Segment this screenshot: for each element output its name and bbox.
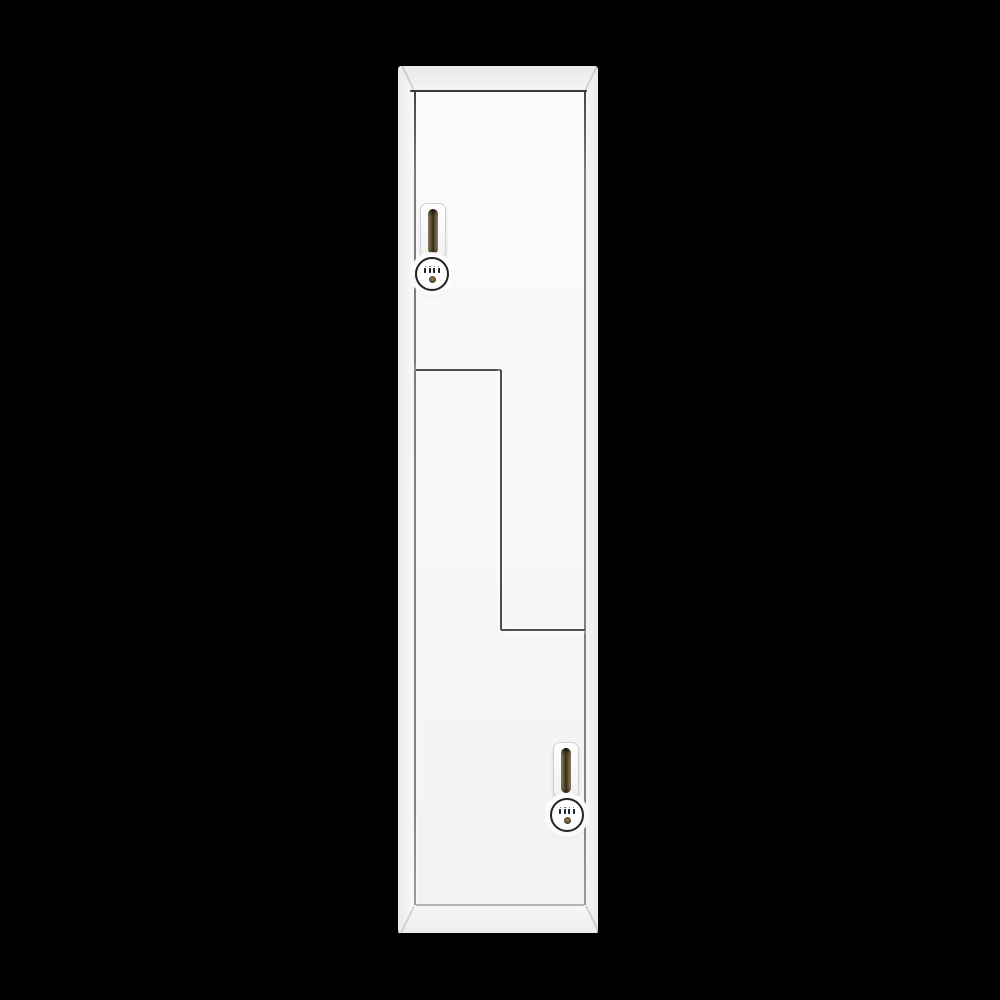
- photo-background: [0, 0, 1000, 1000]
- locker-base-panel: [398, 906, 598, 933]
- z-seam-vertical: [500, 370, 502, 630]
- z-seam-horizontal-upper: [416, 369, 501, 371]
- upper-combination-dials: [417, 266, 447, 273]
- dial-digit-wheels: [552, 809, 582, 814]
- lower-door-handle: [553, 742, 579, 798]
- dial-index-dots: [552, 807, 582, 808]
- keyhole-icon: [564, 817, 571, 824]
- bottom-door-seam: [416, 904, 584, 906]
- locker-top-panel: [398, 66, 598, 91]
- left-door-seam: [414, 92, 416, 905]
- top-door-seam: [410, 90, 587, 93]
- lower-combination-dials: [552, 807, 582, 814]
- lower-door-combination-lock: [550, 798, 584, 832]
- z-seam-horizontal-lower: [501, 629, 585, 631]
- lower-handle-recess: [561, 748, 571, 793]
- right-door-seam: [584, 92, 586, 905]
- upper-door-handle: [420, 203, 446, 259]
- upper-door-combination-lock: [415, 257, 449, 291]
- dial-index-dots: [417, 266, 447, 267]
- dial-digit-wheels: [417, 268, 447, 273]
- upper-handle-recess: [428, 209, 438, 254]
- keyhole-icon: [429, 276, 436, 283]
